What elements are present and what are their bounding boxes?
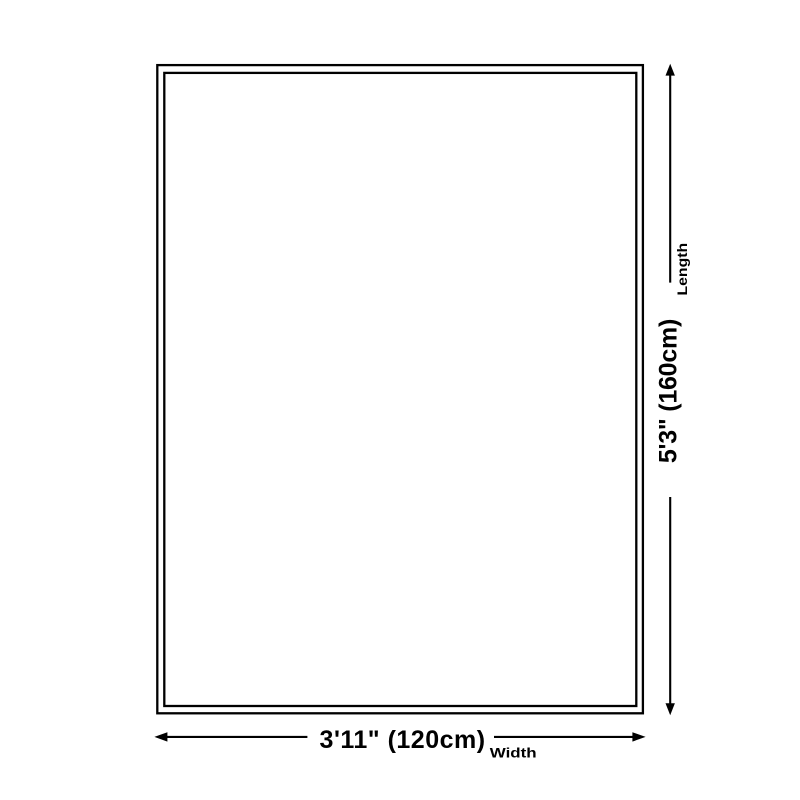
svg-text:3'11" (120cm): 3'11" (120cm) (320, 726, 486, 754)
svg-text:Length: Length (675, 243, 691, 296)
svg-text:5'3" (160cm): 5'3" (160cm) (654, 319, 682, 464)
svg-text:Width: Width (490, 746, 537, 761)
